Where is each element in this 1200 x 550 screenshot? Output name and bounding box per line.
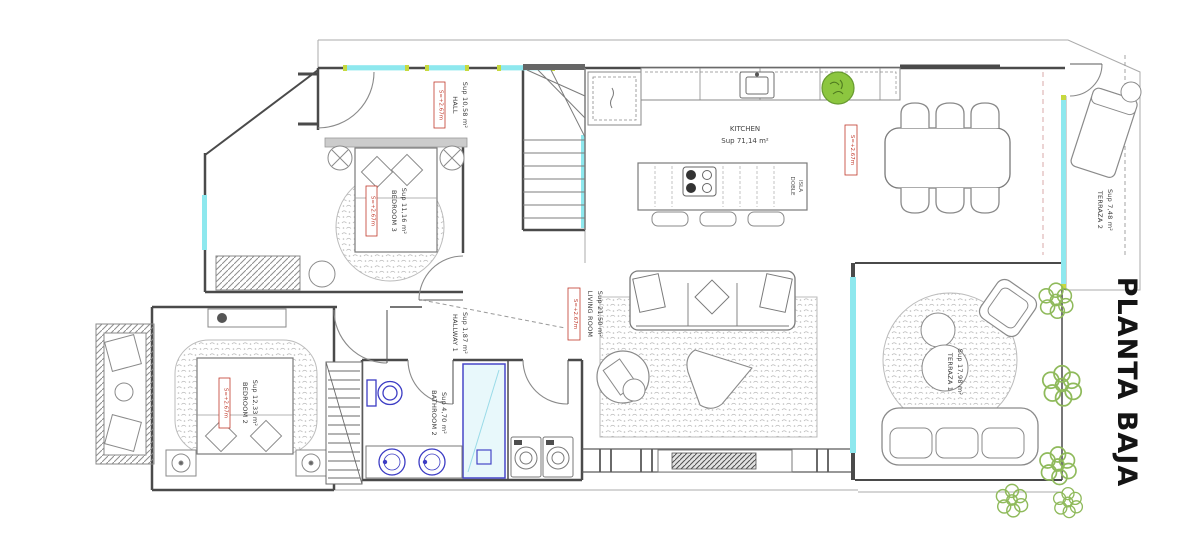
terraza1-name: TERRAZA 1 bbox=[946, 352, 954, 391]
terrace1: TERRAZA 1 Sup 17,98 m² bbox=[882, 276, 1040, 465]
bedroom3-chair bbox=[309, 261, 335, 287]
bedroom3-level-mark: S=+2.67m bbox=[370, 196, 376, 226]
sofa bbox=[630, 271, 795, 330]
kitchen-name: KITCHEN bbox=[730, 125, 760, 133]
terrace1-pouf bbox=[921, 313, 955, 347]
living-room: S=+2.67m LIVING ROOM Sup 21,50 m² bbox=[568, 271, 817, 472]
bathroom2-area: Sup 4,70 m² bbox=[440, 392, 448, 434]
plant-icon bbox=[1040, 447, 1076, 485]
bedroom3-dresser bbox=[216, 256, 300, 290]
bedroom2-wardrobe bbox=[326, 362, 362, 484]
hallway1-name: HALLWAY 1 bbox=[451, 314, 459, 352]
bedroom3-headboard bbox=[325, 138, 467, 147]
shower bbox=[463, 364, 505, 478]
bedroom3-name: BEDROOM 3 bbox=[390, 190, 398, 232]
living-area: Sup 21,50 m² bbox=[596, 291, 604, 338]
counter-plant bbox=[822, 72, 854, 104]
dining-chair bbox=[901, 188, 929, 213]
window-dining bbox=[1061, 100, 1066, 285]
laundry bbox=[511, 437, 573, 477]
island-label-1: DOBLE bbox=[789, 177, 795, 196]
label-terraza2: TERRAZA 2 Sup 7,48 m² bbox=[1096, 189, 1114, 231]
balcony bbox=[96, 324, 154, 464]
kitchen-island: DOBLE ISLA bbox=[638, 163, 807, 210]
toilet bbox=[367, 380, 402, 406]
bedroom2-door bbox=[334, 310, 387, 363]
terrace2: TERRAZA 2 Sup 7,48 m² bbox=[1070, 55, 1141, 255]
bathroom2: BATHROOM 2 Sup 4,70 m² bbox=[366, 364, 573, 478]
window-bedroom3 bbox=[202, 195, 207, 250]
balcony-table bbox=[115, 383, 133, 401]
dining-chair bbox=[936, 103, 964, 128]
vanity-sinks bbox=[366, 446, 462, 478]
label-kitchen-level: S=+2.67m bbox=[845, 125, 857, 175]
label-bathroom2: BATHROOM 2 Sup 4,70 m² bbox=[430, 390, 448, 436]
hall-level-mark: S=+2.67m bbox=[438, 90, 444, 120]
bar-stools bbox=[652, 212, 784, 226]
kitchen-level-mark: S=+2.67m bbox=[849, 135, 855, 165]
cooktop bbox=[683, 167, 716, 196]
dining-chair bbox=[901, 103, 929, 128]
bedroom2-nightstand bbox=[166, 450, 196, 476]
floor-plan-page: S=+2.67m HALL Sup 10,58 m² HALLWAY 1 Sup… bbox=[0, 0, 1200, 550]
label-living: S=+2.67m LIVING ROOM Sup 21,50 m² bbox=[568, 288, 604, 340]
island-label-2: ISLA bbox=[797, 180, 803, 192]
living-level-mark: S=+2.67m bbox=[572, 299, 578, 329]
bedroom2-level-mark: S=+2.67m bbox=[223, 388, 229, 418]
tv-console bbox=[658, 450, 792, 472]
floor-plan-svg: S=+2.67m HALL Sup 10,58 m² HALLWAY 1 Sup… bbox=[0, 0, 1200, 550]
plant-icon bbox=[1039, 283, 1073, 318]
bedroom3-side-table bbox=[328, 146, 352, 170]
bedroom3-side-table-2 bbox=[440, 146, 464, 170]
bedroom2-nightstand-2 bbox=[296, 450, 326, 476]
window-hall bbox=[346, 65, 406, 70]
plant-icon bbox=[996, 484, 1027, 517]
hall-area: Sup 10,58 m² bbox=[461, 82, 469, 129]
kitchen-area: Sup 71,14 m² bbox=[721, 137, 769, 145]
hallway1-area: Sup 1,87 m² bbox=[461, 312, 469, 354]
bedroom2-name: BEDROOM 2 bbox=[241, 382, 249, 424]
terraza2-name: TERRAZA 2 bbox=[1096, 190, 1104, 229]
label-kitchen: KITCHEN Sup 71,14 m² bbox=[721, 125, 769, 145]
dining-chair bbox=[971, 188, 999, 213]
dining-table bbox=[885, 128, 1010, 188]
plant-icon bbox=[1054, 488, 1083, 518]
plan-title: PLANTA BAJA bbox=[1111, 277, 1142, 488]
ceiling-change-line bbox=[422, 300, 565, 328]
kitchen-sink bbox=[740, 72, 774, 98]
dining bbox=[885, 103, 1010, 213]
outdoor-sofa bbox=[882, 408, 1038, 465]
bedroom2-area: Sup 12,33 m² bbox=[251, 380, 259, 427]
bedroom3: S=+2.67m BEDROOM 3 Sup 11,16 m² bbox=[216, 138, 467, 290]
bedroom3-area: Sup 11,16 m² bbox=[400, 188, 408, 235]
terraza1-area: Sup 17,98 m² bbox=[956, 349, 964, 396]
hall-name: HALL bbox=[451, 96, 459, 114]
bedroom2: S=+2.67m BEDROOM 2 Sup 12,33 m² bbox=[166, 309, 362, 484]
glass-door-terrace1 bbox=[850, 277, 856, 453]
laundry-door bbox=[523, 360, 568, 404]
bedroom2-dresser-knob bbox=[217, 313, 227, 323]
bathroom2-name: BATHROOM 2 bbox=[430, 390, 438, 436]
staircase bbox=[523, 64, 585, 230]
dining-chair bbox=[971, 103, 999, 128]
terrace2-side-table bbox=[1121, 82, 1141, 102]
dining-chair bbox=[936, 188, 964, 213]
window-hall-2 bbox=[428, 65, 466, 70]
armchair bbox=[597, 351, 649, 403]
kitchen-tall-unit bbox=[588, 72, 641, 125]
terraza2-area: Sup 7,48 m² bbox=[1106, 189, 1114, 231]
entry-door bbox=[318, 72, 374, 128]
label-hallway1: HALLWAY 1 Sup 1,87 m² bbox=[451, 312, 469, 354]
label-hall: S=+2.67m HALL Sup 10,58 m² bbox=[434, 82, 469, 129]
living-name: LIVING ROOM bbox=[586, 291, 594, 337]
